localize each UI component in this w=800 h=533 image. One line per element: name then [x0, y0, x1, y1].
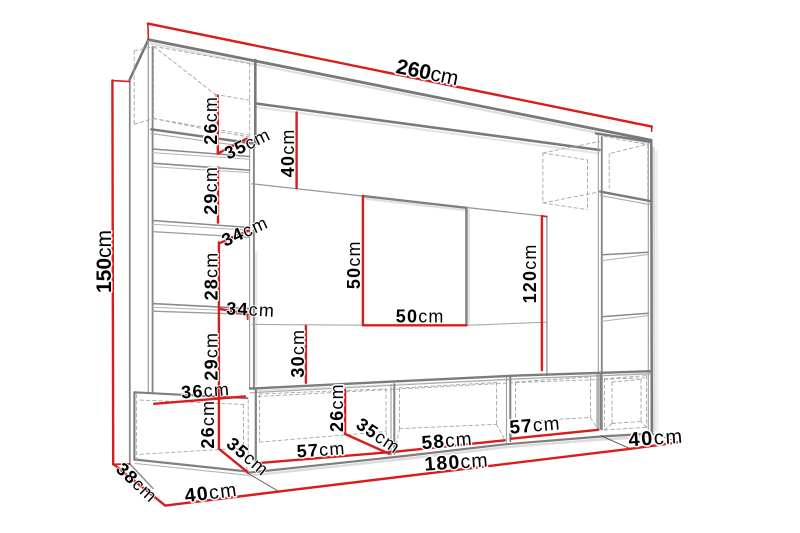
svg-text:40cm: 40cm — [628, 426, 685, 452]
svg-text:50cm: 50cm — [344, 240, 364, 289]
svg-text:26cm: 26cm — [327, 383, 347, 432]
svg-text:58cm: 58cm — [421, 429, 474, 454]
svg-text:28cm: 28cm — [202, 252, 222, 301]
svg-text:120cm: 120cm — [520, 243, 540, 303]
svg-text:34cm: 34cm — [226, 298, 276, 321]
svg-text:50cm: 50cm — [396, 306, 445, 326]
svg-text:30cm: 30cm — [288, 329, 308, 378]
svg-text:150cm: 150cm — [93, 230, 116, 293]
svg-text:36cm: 36cm — [181, 379, 231, 402]
svg-text:29cm: 29cm — [202, 332, 222, 381]
svg-text:26cm: 26cm — [201, 96, 221, 145]
svg-text:57cm: 57cm — [509, 413, 562, 438]
svg-text:40cm: 40cm — [278, 128, 298, 177]
svg-text:29cm: 29cm — [201, 166, 221, 215]
svg-text:26cm: 26cm — [198, 400, 218, 449]
svg-text:57cm: 57cm — [296, 438, 346, 461]
